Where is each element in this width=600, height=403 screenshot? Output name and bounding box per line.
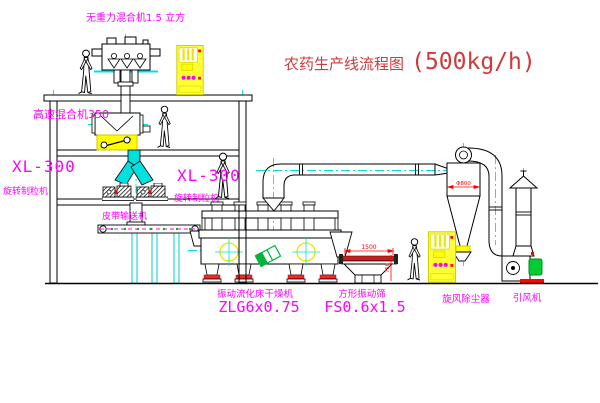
diagram-svg: Φ800 1500	[0, 0, 600, 403]
high-speed-mixer	[92, 95, 150, 150]
induced-draft-fan	[502, 252, 544, 283]
gravity-mixer-label: 无重力混合机1.5 立方	[86, 11, 185, 24]
worker-figure-ground	[407, 239, 420, 280]
cyclone-diameter-dim: Φ800	[456, 181, 471, 187]
control-cabinet-top	[177, 45, 203, 94]
screen-model-label: FS0.6x1.5	[324, 298, 405, 316]
floor-slab-2	[57, 150, 239, 156]
fan-motor	[529, 259, 542, 275]
granulator-right-model: XL-300	[177, 166, 241, 185]
cyclone-label: 旋风除尘器	[442, 293, 490, 305]
granulator-right	[136, 183, 168, 201]
screen-length-dim: 1500	[361, 244, 376, 251]
control-cabinet-ground	[428, 232, 455, 282]
spring-supports	[203, 264, 337, 282]
title-text: 农药生产线流程图	[284, 55, 404, 73]
high-speed-mixer-label: 高速混合机350	[33, 107, 109, 121]
worker-figure-roof	[79, 50, 92, 94]
granulator-right-name: 旋转制粒机	[174, 192, 219, 204]
vibrating-screen: 1500 750	[339, 244, 398, 283]
process-flow-diagram: Φ800 1500	[0, 0, 600, 403]
title-capacity: (500kg/h)	[411, 49, 536, 75]
dryer-model-label: ZLG6x0.75	[218, 298, 299, 316]
fan-label: 引风机	[513, 292, 542, 304]
granulator-left-name: 旋转制粒机	[3, 185, 48, 197]
floor-slab-1	[44, 95, 252, 101]
exhaust-stack	[510, 171, 537, 256]
screen-height-dim: 750	[385, 263, 391, 273]
belt-conveyor	[98, 225, 200, 283]
diagram-title: 农药生产线流程图 (500kg/h)	[284, 49, 536, 75]
fluid-bed-dryer	[190, 202, 352, 282]
gravity-mixer	[92, 37, 160, 95]
granulator-left	[102, 183, 134, 201]
granulator-left-model: XL-300	[12, 157, 76, 176]
belt-conveyor-label: 皮带输送机	[102, 210, 147, 222]
worker-figure-floor2	[157, 106, 170, 147]
